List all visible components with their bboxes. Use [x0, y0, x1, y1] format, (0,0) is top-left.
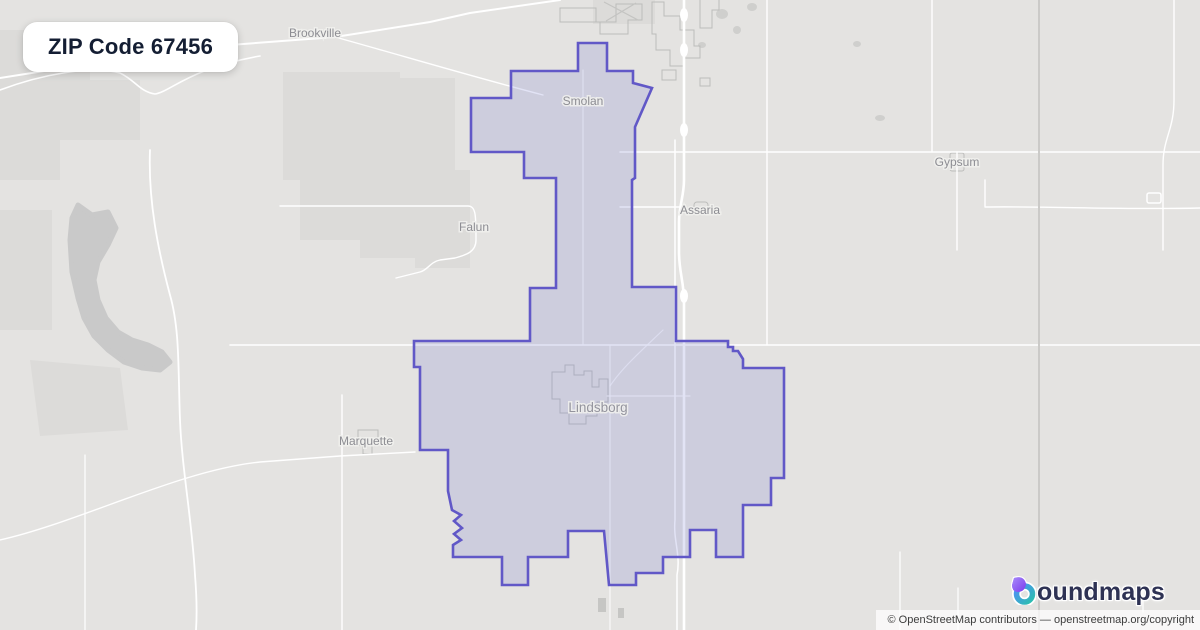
zip-code-badge-label: ZIP Code 67456 [48, 34, 213, 60]
town-label-lindsborg: Lindsborg [568, 400, 627, 415]
attribution-link[interactable]: © OpenStreetMap contributors — openstree… [888, 614, 1194, 626]
terrain-patch-left-c [30, 360, 128, 436]
terrain-patch-topleft [283, 72, 470, 268]
terrain-patch-left-b [0, 210, 52, 330]
town-label-assaria: Assaria [680, 203, 720, 217]
zip-code-badge: ZIP Code 67456 [23, 22, 238, 72]
town-label-gypsum: Gypsum [935, 155, 980, 169]
boundmaps-logo-text: oundmaps [1037, 580, 1165, 605]
town-label-falun: Falun [459, 220, 489, 234]
town-label-brookville: Brookville [289, 26, 341, 40]
town-label-smolan: Smolan [563, 94, 604, 108]
boundmaps-logo: oundmaps [1011, 576, 1165, 605]
town-label-marquette: Marquette [339, 434, 393, 448]
base-map[interactable]: Brookville Smolan Falun Assaria Gypsum M… [0, 0, 1200, 630]
map-viewport[interactable]: Brookville Smolan Falun Assaria Gypsum M… [0, 0, 1200, 630]
boundmaps-logo-icon [1011, 576, 1036, 605]
attribution-bar: © OpenStreetMap contributors — openstree… [876, 610, 1200, 630]
